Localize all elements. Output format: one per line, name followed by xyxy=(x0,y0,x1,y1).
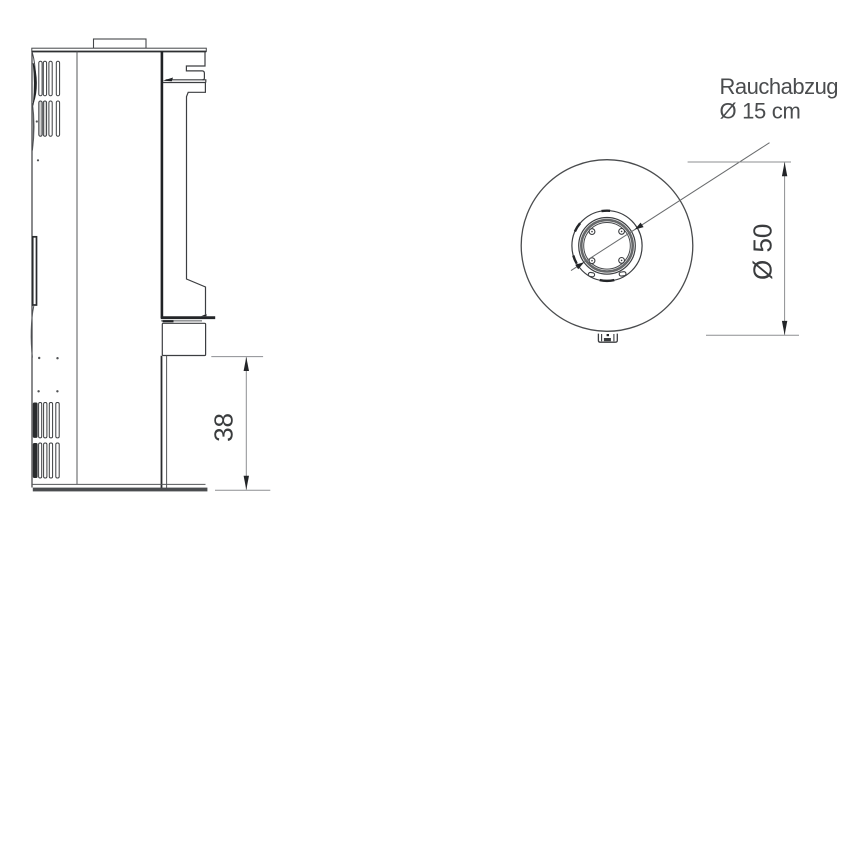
svg-text:Ø 15 cm: Ø 15 cm xyxy=(720,99,801,124)
svg-text:Ø 50: Ø 50 xyxy=(748,224,778,280)
svg-text:38: 38 xyxy=(209,413,239,442)
svg-text:Rauchabzug: Rauchabzug xyxy=(720,74,839,99)
